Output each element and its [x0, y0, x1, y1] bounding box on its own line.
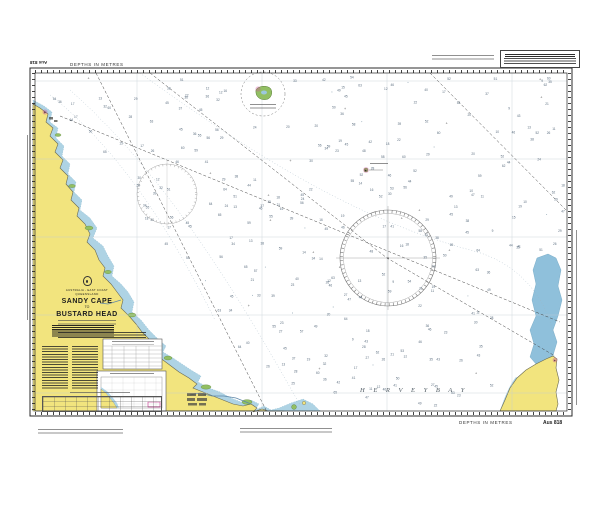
notes-column-b [72, 346, 98, 390]
svg-text:19: 19 [338, 139, 342, 143]
svg-text:18: 18 [405, 243, 409, 247]
title-region: AUSTRALIA - EAST COAST [44, 288, 130, 292]
svg-text:19: 19 [518, 204, 522, 208]
svg-text:27: 27 [344, 293, 348, 297]
svg-text:42: 42 [368, 140, 372, 144]
svg-text:49: 49 [418, 401, 422, 405]
svg-text:37: 37 [260, 204, 264, 208]
svg-text:65: 65 [244, 265, 248, 269]
svg-text:45: 45 [188, 225, 192, 229]
svg-text:32: 32 [159, 186, 163, 190]
svg-text:31: 31 [150, 218, 154, 222]
svg-text:44: 44 [507, 161, 511, 165]
svg-text:35: 35 [423, 255, 427, 259]
svg-text:32: 32 [103, 104, 107, 108]
svg-text:28: 28 [362, 345, 366, 349]
svg-text:20: 20 [471, 152, 475, 156]
svg-text:34: 34 [312, 256, 316, 260]
svg-text:38: 38 [435, 236, 439, 240]
svg-text:17: 17 [140, 144, 144, 148]
tides-table [42, 396, 162, 412]
svg-text:64: 64 [238, 345, 242, 349]
svg-text:+: + [475, 371, 478, 375]
svg-text:42: 42 [337, 380, 341, 384]
svg-text:42: 42 [322, 78, 326, 82]
svg-text:62: 62 [552, 191, 556, 195]
svg-text:+: + [209, 171, 212, 175]
svg-text:43: 43 [436, 358, 440, 362]
svg-text:50: 50 [443, 254, 447, 258]
svg-text:57: 57 [300, 330, 304, 334]
svg-text:19: 19 [307, 357, 311, 361]
svg-text:14: 14 [302, 250, 306, 254]
svg-text:62: 62 [544, 83, 548, 87]
top-right-margin-note [432, 55, 494, 61]
svg-text:65: 65 [218, 213, 222, 217]
svg-text:50: 50 [396, 376, 400, 380]
svg-text:35: 35 [516, 246, 520, 250]
svg-text:46: 46 [388, 173, 392, 177]
svg-text:23: 23 [444, 331, 448, 335]
svg-text:18: 18 [561, 184, 565, 188]
svg-text:15: 15 [512, 215, 516, 219]
svg-text:11: 11 [431, 289, 435, 293]
svg-text:47: 47 [347, 297, 351, 301]
depths-in-metres-top: DEPTHS IN METRES [70, 62, 124, 67]
depths-in-metres-bottom: DEPTHS IN METRES [459, 420, 513, 425]
svg-text:23: 23 [280, 321, 284, 325]
svg-text:36: 36 [487, 270, 491, 274]
svg-text:33: 33 [293, 79, 297, 83]
svg-text:28: 28 [371, 166, 375, 170]
svg-text:24: 24 [253, 126, 257, 130]
svg-text:21: 21 [419, 287, 423, 291]
svg-text:59: 59 [388, 290, 392, 294]
svg-text:51: 51 [233, 195, 237, 199]
svg-text:64: 64 [223, 188, 227, 192]
svg-text:56: 56 [403, 186, 407, 190]
svg-text:36: 36 [323, 378, 327, 382]
svg-text:45: 45 [199, 108, 203, 112]
svg-text:52: 52 [490, 383, 494, 387]
svg-text:44: 44 [509, 244, 513, 248]
svg-text:59: 59 [137, 183, 141, 187]
svg-text:17: 17 [71, 102, 75, 106]
svg-text:46: 46 [391, 83, 395, 87]
sea-label-hervey-bay: H E R V E Y B A Y [360, 387, 468, 394]
svg-text:18: 18 [276, 195, 280, 199]
svg-text:48: 48 [370, 249, 374, 253]
svg-text:49: 49 [487, 288, 491, 292]
svg-text:26: 26 [459, 359, 463, 363]
svg-text:40: 40 [295, 277, 299, 281]
svg-text:45: 45 [230, 295, 234, 299]
right-margin-copyright [575, 230, 577, 405]
svg-text:20: 20 [327, 312, 331, 316]
svg-text:22: 22 [397, 138, 401, 142]
title-line2: TO [44, 305, 130, 309]
tidal-panel-title [112, 341, 154, 345]
svg-text:45: 45 [301, 193, 305, 197]
svg-text:65: 65 [450, 243, 454, 247]
border-ticks-right [568, 73, 571, 411]
svg-text:14: 14 [359, 182, 363, 186]
svg-text:10: 10 [523, 200, 527, 204]
svg-text:+: + [446, 121, 449, 125]
svg-text:39: 39 [271, 294, 275, 298]
svg-text:48: 48 [362, 149, 366, 153]
svg-text:54: 54 [350, 76, 354, 80]
svg-text:36: 36 [206, 95, 210, 99]
svg-text:64: 64 [70, 118, 74, 122]
svg-text:+: + [312, 250, 315, 254]
svg-text:17: 17 [383, 224, 387, 228]
svg-text:+: + [88, 76, 91, 80]
svg-text:47: 47 [365, 396, 369, 400]
svg-text:36: 36 [426, 324, 430, 328]
svg-text:52: 52 [360, 173, 364, 177]
svg-text:29: 29 [425, 218, 429, 222]
svg-text:59: 59 [247, 221, 251, 225]
svg-text:63: 63 [358, 84, 362, 88]
svg-text:26: 26 [547, 131, 551, 135]
svg-text:9: 9 [392, 280, 394, 284]
svg-text:56: 56 [215, 128, 219, 132]
svg-text:63: 63 [150, 119, 154, 123]
svg-text:58: 58 [352, 122, 356, 126]
svg-text:13: 13 [233, 205, 237, 209]
svg-text:10: 10 [495, 130, 499, 134]
svg-text:35: 35 [548, 80, 552, 84]
svg-text:56: 56 [219, 255, 223, 259]
svg-text:62: 62 [376, 351, 380, 355]
svg-text:30: 30 [137, 176, 141, 180]
svg-text:26: 26 [553, 242, 557, 246]
svg-text:27: 27 [365, 356, 369, 360]
svg-text:63: 63 [218, 309, 222, 313]
svg-text:36: 36 [193, 132, 197, 136]
svg-text:18: 18 [145, 216, 149, 220]
svg-text:17: 17 [354, 366, 358, 370]
svg-text:36: 36 [340, 112, 344, 116]
svg-text:11: 11 [552, 127, 556, 131]
svg-text:63: 63 [331, 276, 335, 280]
border-ticks-left [32, 73, 35, 411]
svg-text:28: 28 [490, 316, 494, 320]
svg-text:43: 43 [477, 353, 481, 357]
svg-text:11: 11 [476, 311, 480, 315]
svg-text:46: 46 [418, 340, 422, 344]
svg-text:60: 60 [402, 155, 406, 159]
svg-text:52: 52 [382, 273, 386, 277]
svg-text:34: 34 [229, 309, 233, 313]
svg-text:23: 23 [291, 283, 295, 287]
svg-text:26: 26 [382, 358, 386, 362]
svg-text:49: 49 [449, 195, 453, 199]
svg-text:35: 35 [429, 357, 433, 361]
svg-text:29: 29 [222, 178, 226, 182]
svg-text:41: 41 [390, 225, 394, 229]
svg-text:45: 45 [325, 227, 329, 231]
svg-text:12: 12 [206, 87, 210, 91]
svg-text:13: 13 [249, 239, 253, 243]
svg-text:16: 16 [400, 244, 404, 248]
svg-text:+: + [448, 248, 451, 252]
border-ticks-bottom [35, 412, 567, 415]
svg-text:30: 30 [309, 159, 313, 163]
tides-table-title [70, 392, 130, 394]
svg-text:29: 29 [558, 229, 562, 233]
svg-text:60: 60 [437, 131, 441, 135]
svg-text:36: 36 [58, 100, 62, 104]
svg-text:17: 17 [229, 236, 233, 240]
svg-text:37: 37 [404, 355, 408, 359]
svg-text:29: 29 [220, 136, 224, 140]
svg-text:56: 56 [207, 136, 211, 140]
svg-text:13: 13 [454, 205, 458, 209]
svg-text:44: 44 [359, 296, 363, 300]
svg-text:15: 15 [267, 200, 271, 204]
svg-text:46: 46 [175, 160, 179, 164]
svg-text:55: 55 [269, 214, 273, 218]
chart-number-top: Aus 818 [30, 60, 47, 65]
svg-text:52: 52 [501, 154, 505, 158]
svg-text:24: 24 [537, 158, 541, 162]
svg-text:34: 34 [231, 242, 235, 246]
svg-text:15: 15 [119, 142, 123, 146]
chart-number-bottom: Aus 818 [543, 420, 562, 426]
svg-text:49: 49 [337, 88, 341, 92]
svg-text:12: 12 [384, 87, 388, 91]
svg-text:43: 43 [364, 339, 368, 343]
islet [302, 401, 305, 404]
left-margin-copyright [27, 135, 29, 320]
svg-text:51: 51 [180, 78, 184, 82]
svg-text:45: 45 [165, 101, 169, 105]
svg-text:64: 64 [209, 202, 213, 206]
svg-text:15: 15 [341, 85, 345, 89]
svg-text:39: 39 [153, 192, 157, 196]
svg-text:56: 56 [89, 129, 93, 133]
svg-text:+: + [318, 367, 321, 371]
svg-text:47: 47 [561, 209, 565, 213]
islet [292, 405, 297, 410]
svg-text:45: 45 [179, 128, 183, 132]
svg-text:+: + [267, 193, 270, 197]
svg-text:55: 55 [351, 179, 355, 183]
svg-text:41: 41 [471, 312, 475, 316]
svg-text:45: 45 [449, 212, 453, 216]
svg-text:45: 45 [283, 347, 287, 351]
svg-text:16: 16 [224, 89, 228, 93]
reef-island-top [241, 72, 285, 116]
svg-text:41: 41 [205, 160, 209, 164]
svg-text:19: 19 [432, 285, 436, 289]
svg-text:45: 45 [345, 143, 349, 147]
svg-text:52: 52 [379, 194, 383, 198]
bottom-center-imprint [240, 428, 332, 433]
note-box-text [504, 58, 576, 65]
svg-text:45: 45 [344, 94, 348, 98]
svg-text:19: 19 [341, 214, 345, 218]
svg-text:22: 22 [434, 403, 438, 407]
svg-text:51: 51 [494, 77, 498, 81]
note-paragraph-wide [58, 332, 146, 338]
title-line3: BUSTARD HEAD [44, 311, 130, 318]
svg-text:50: 50 [332, 105, 336, 109]
svg-text:13: 13 [282, 363, 286, 367]
svg-text:27: 27 [279, 329, 283, 333]
svg-text:13: 13 [358, 279, 362, 283]
svg-text:+: + [401, 216, 404, 220]
svg-text:23: 23 [457, 393, 461, 397]
svg-text:21: 21 [545, 102, 549, 106]
svg-text:38: 38 [530, 137, 534, 141]
svg-text:21: 21 [391, 353, 395, 357]
inset-panel-title [110, 373, 154, 375]
islet-label [370, 163, 388, 165]
svg-text:53: 53 [401, 349, 405, 353]
svg-text:20: 20 [468, 113, 472, 117]
svg-text:17: 17 [74, 115, 78, 119]
svg-text:38: 38 [466, 219, 470, 223]
svg-text:24: 24 [225, 204, 229, 208]
svg-text:12: 12 [219, 90, 223, 94]
svg-text:34: 34 [143, 203, 147, 207]
svg-text:16: 16 [319, 218, 323, 222]
svg-text:64: 64 [344, 317, 348, 321]
shallow-spit-fraser [530, 254, 562, 364]
svg-text:+: + [344, 106, 347, 110]
note-box-text [505, 54, 575, 57]
svg-text:55: 55 [272, 325, 276, 329]
svg-text:59: 59 [478, 174, 482, 178]
light-flare [553, 358, 558, 363]
light-flare [42, 109, 47, 114]
svg-text:64: 64 [476, 248, 480, 252]
svg-text:49: 49 [314, 324, 318, 328]
svg-text:45: 45 [465, 230, 469, 234]
svg-text:20: 20 [315, 124, 319, 128]
svg-text:51: 51 [425, 233, 429, 237]
svg-text:26: 26 [151, 149, 155, 153]
svg-text:29: 29 [134, 97, 138, 101]
svg-text:60: 60 [107, 106, 111, 110]
svg-text:12: 12 [156, 177, 160, 181]
svg-text:59: 59 [194, 149, 198, 153]
svg-text:56: 56 [300, 201, 304, 205]
svg-text:36: 36 [184, 95, 188, 99]
svg-text:46: 46 [512, 131, 516, 135]
svg-text:44: 44 [247, 183, 251, 187]
title-scale-note [44, 320, 130, 325]
top-right-note-box [500, 50, 580, 68]
svg-text:18: 18 [386, 142, 390, 146]
svg-text:58: 58 [381, 155, 385, 159]
svg-text:32: 32 [324, 354, 328, 358]
svg-text:30: 30 [474, 321, 478, 325]
svg-text:54: 54 [53, 97, 57, 101]
nautical-chart-page: ✶ ✶ ✶ [0, 0, 610, 522]
svg-text:26: 26 [326, 280, 330, 284]
svg-text:35: 35 [479, 344, 483, 348]
svg-text:28: 28 [129, 115, 133, 119]
svg-text:40: 40 [424, 88, 428, 92]
svg-text:9: 9 [352, 337, 354, 341]
svg-text:41: 41 [352, 376, 356, 380]
lighthouse-star-icon: ✶ [364, 168, 367, 173]
svg-text:23: 23 [335, 149, 339, 153]
svg-text:+: + [540, 95, 543, 99]
svg-text:60: 60 [181, 146, 185, 150]
svg-text:30: 30 [388, 192, 392, 196]
svg-text:32: 32 [216, 98, 220, 102]
svg-text:16: 16 [370, 188, 374, 192]
svg-text:47: 47 [471, 193, 475, 197]
svg-text:45: 45 [164, 242, 168, 246]
svg-text:63: 63 [475, 268, 479, 272]
svg-text:22: 22 [309, 188, 313, 192]
border-ticks-top [35, 70, 567, 73]
svg-text:+: + [418, 208, 421, 212]
svg-text:65: 65 [103, 150, 107, 154]
svg-text:+: + [269, 218, 272, 222]
svg-text:62: 62 [432, 265, 436, 269]
svg-text:11: 11 [481, 195, 485, 199]
chart-canvas: ✶ ✶ ✶ [0, 0, 610, 522]
island-label [250, 104, 276, 109]
svg-text:44: 44 [408, 180, 412, 184]
svg-text:13: 13 [99, 97, 103, 101]
svg-text:28: 28 [294, 369, 298, 373]
svg-text:17: 17 [442, 90, 446, 94]
svg-text:38: 38 [260, 242, 264, 246]
svg-text:40: 40 [246, 341, 250, 345]
svg-text:57: 57 [254, 269, 258, 273]
svg-text:29: 29 [554, 197, 558, 201]
svg-text:56: 56 [170, 215, 174, 219]
title-line1: SANDY CAPE [44, 298, 130, 305]
svg-text:51: 51 [539, 248, 543, 252]
svg-text:37: 37 [179, 106, 183, 110]
svg-text:52: 52 [535, 131, 539, 135]
svg-text:53: 53 [390, 187, 394, 191]
svg-text:21: 21 [251, 278, 255, 282]
notes-column-a [42, 346, 68, 390]
svg-text:25: 25 [291, 381, 295, 385]
svg-text:17: 17 [167, 226, 171, 230]
svg-text:46: 46 [428, 328, 432, 332]
svg-text:37: 37 [292, 356, 296, 360]
svg-text:60: 60 [547, 76, 551, 80]
svg-text:58: 58 [418, 229, 422, 233]
svg-text:60: 60 [316, 371, 320, 375]
svg-text:61: 61 [280, 207, 284, 211]
svg-text:54: 54 [408, 279, 412, 283]
svg-text:18: 18 [366, 329, 370, 333]
svg-text:26: 26 [266, 364, 270, 368]
svg-text:56: 56 [318, 144, 322, 148]
crest-icon [83, 276, 92, 286]
svg-text:22: 22 [418, 304, 422, 308]
svg-text:20: 20 [286, 125, 290, 129]
svg-text:54: 54 [186, 256, 190, 260]
svg-text:43: 43 [517, 114, 521, 118]
svg-text:65: 65 [333, 390, 337, 394]
svg-text:59: 59 [279, 246, 283, 250]
svg-text:14: 14 [319, 257, 323, 261]
svg-text:53: 53 [457, 101, 461, 105]
